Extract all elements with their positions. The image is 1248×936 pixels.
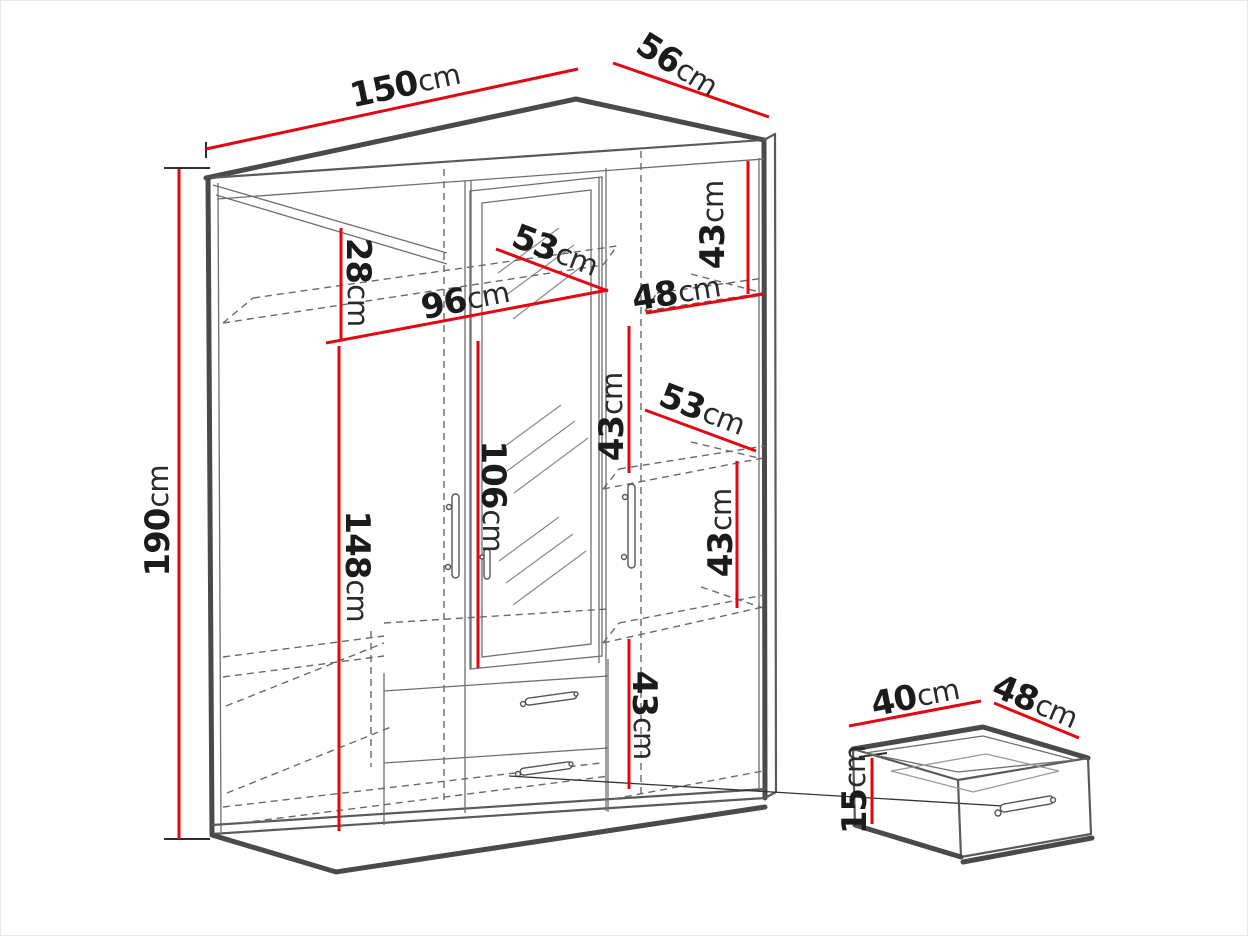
dimension-label-drawer-height: 15cm [835, 746, 875, 835]
door-top-line [217, 159, 764, 199]
dimension-label-overall-depth: 56cm [629, 25, 725, 106]
dimension-label-drawer-depth: 48cm [986, 666, 1083, 737]
dimension-label-middle-shelf-width: 53cm [654, 375, 751, 444]
drawer-front-lines [384, 659, 608, 825]
drawer-floor [891, 754, 1059, 792]
left-edge [208, 178, 212, 834]
handle-dot [569, 762, 573, 766]
left-inner-line [218, 183, 221, 832]
right-shelf-3-dashed [603, 595, 764, 643]
dimension-label-drawer-width: 40cm [868, 669, 963, 725]
dimension-label-right-section-width: 48cm [629, 266, 723, 319]
dimension-label-shelf-spacing-middle: 43cm [701, 489, 741, 578]
dimension-annotations: 150cm56cm190cm28cm96cm53cm48cm43cm43cm53… [138, 25, 1084, 839]
drawer-bottom-edges [855, 825, 1092, 862]
dimension-label-top-compartment-height: 28cm [338, 238, 378, 327]
handle-dot [1051, 798, 1056, 803]
dimension-label-mirror-door-height: 106cm [473, 440, 513, 551]
dimension-label-overall-height: 190cm [138, 465, 178, 576]
drawer-detail-handle [1000, 795, 1055, 812]
technical-drawing: 150cm56cm190cm28cm96cm53cm48cm43cm43cm53… [1, 1, 1248, 936]
mirror-shine-lower [499, 517, 586, 605]
drawer-unit-dashed [223, 609, 608, 767]
dimension-label-lower-interior-height: 148cm [337, 510, 377, 621]
handle-dot [447, 505, 452, 510]
handle-dot [623, 495, 628, 500]
dimension-label-shelf-spacing-lower: 43cm [624, 671, 664, 760]
internal-drawers [384, 659, 608, 825]
left-door-handle [452, 494, 459, 578]
dimension-label-right-top-shelf-height: 43cm [693, 181, 733, 270]
dimension-label-shelf-spacing-upper: 43cm [592, 373, 632, 462]
handle-dot [622, 555, 627, 560]
mirror-shine-middle [501, 405, 588, 493]
right-edge [764, 140, 765, 798]
handle-dot [516, 772, 521, 777]
dimension-label-top-shelf-width: 53cm [507, 216, 604, 285]
handle-dot [574, 692, 578, 696]
drawer-1-handle [525, 691, 577, 705]
drawer-box-edges [853, 749, 1091, 857]
mirror-door-handle [484, 549, 490, 579]
handle-dot [480, 555, 484, 559]
drawer-2-handle [520, 761, 572, 775]
drawer-rim-back-edges [853, 727, 1088, 758]
drawer-detail [853, 727, 1092, 862]
handle-dot [446, 565, 451, 570]
handle-dot [995, 810, 1001, 816]
right-door-handle [628, 484, 635, 568]
handle-dot [521, 702, 526, 707]
wardrobe-dimension-diagram: 150cm56cm190cm28cm96cm53cm48cm43cm43cm53… [0, 0, 1248, 936]
